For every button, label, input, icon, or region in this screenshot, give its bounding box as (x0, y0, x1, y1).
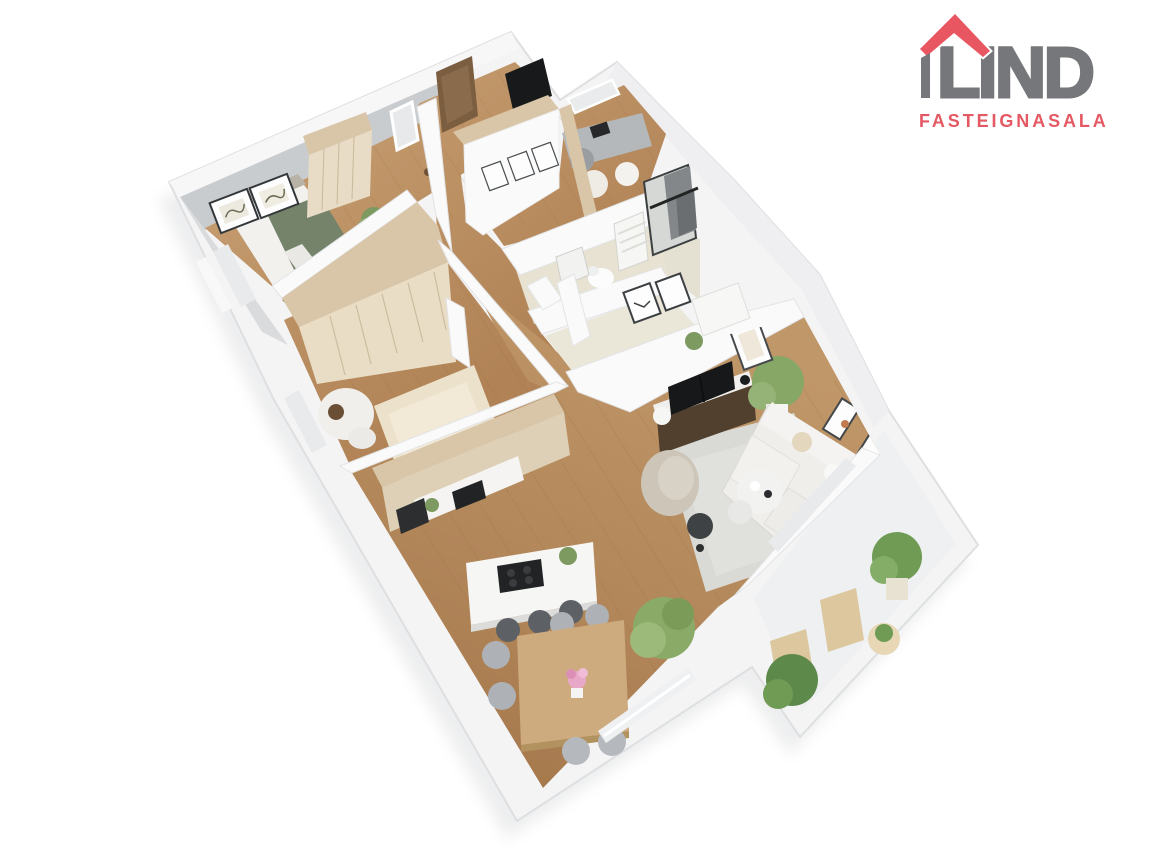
svg-text:FASTEIGNASALA: FASTEIGNASALA (919, 111, 1109, 131)
svg-text:LIND: LIND (937, 34, 1093, 113)
